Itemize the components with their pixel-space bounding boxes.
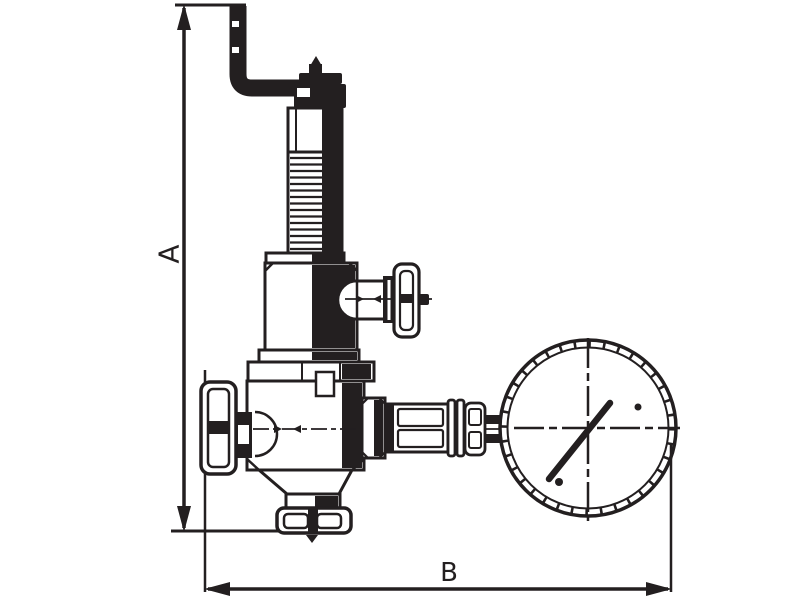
dimension-a-arrow-down-icon [177, 506, 191, 532]
gauge-needle-counterweight [555, 478, 563, 486]
cap-highlight [297, 88, 310, 97]
drawing-canvas: A B [0, 0, 800, 598]
outlet-neck-shade [315, 496, 338, 507]
coupling-ridge [448, 400, 455, 456]
body-flanges [248, 350, 374, 381]
thread-shade [322, 152, 342, 253]
vent-pipe-run [238, 6, 306, 88]
dimension-b-label: B [440, 558, 458, 588]
flange-shade [312, 352, 357, 360]
pipe-highlight [232, 21, 239, 27]
gauge-dial-dot [635, 404, 642, 411]
dimension-a-label: A [153, 244, 186, 263]
flange-shade [342, 364, 371, 379]
side-stem-tip [419, 294, 429, 305]
cap-nub [309, 64, 322, 74]
pipe-long-nut [385, 404, 448, 452]
packing-nut-slit [388, 280, 391, 320]
nut-cap [385, 404, 394, 452]
pipe-highlight [232, 47, 239, 53]
spring-housing [266, 108, 344, 263]
coupling-ridge [457, 400, 464, 456]
body-shade [342, 383, 362, 468]
outlet-funnel [259, 470, 352, 494]
union-nut-center [308, 509, 318, 532]
dimension-b-arrow-left-icon [204, 582, 230, 596]
side-handwheel-hub [400, 294, 413, 303]
gauge-connection-pipe [362, 398, 504, 458]
vent-pipe [232, 6, 306, 88]
pressure-gauge [500, 338, 680, 521]
cap-top [299, 73, 342, 84]
adjusting-cap [294, 56, 346, 108]
inlet-stem-gap [238, 425, 249, 444]
dimension-a-arrow-up-icon [177, 4, 191, 30]
fitting-shade [374, 400, 383, 456]
outlet-tip [306, 535, 318, 543]
valve-dimensional-drawing: A B [0, 0, 800, 598]
housing-shade [322, 108, 342, 152]
inlet-handwheel-hub [208, 421, 229, 434]
body-window [316, 372, 334, 396]
dimension-b-arrow-right-icon [646, 582, 672, 596]
inlet-handwheel-group [201, 382, 252, 474]
side-handwheel [394, 264, 429, 337]
